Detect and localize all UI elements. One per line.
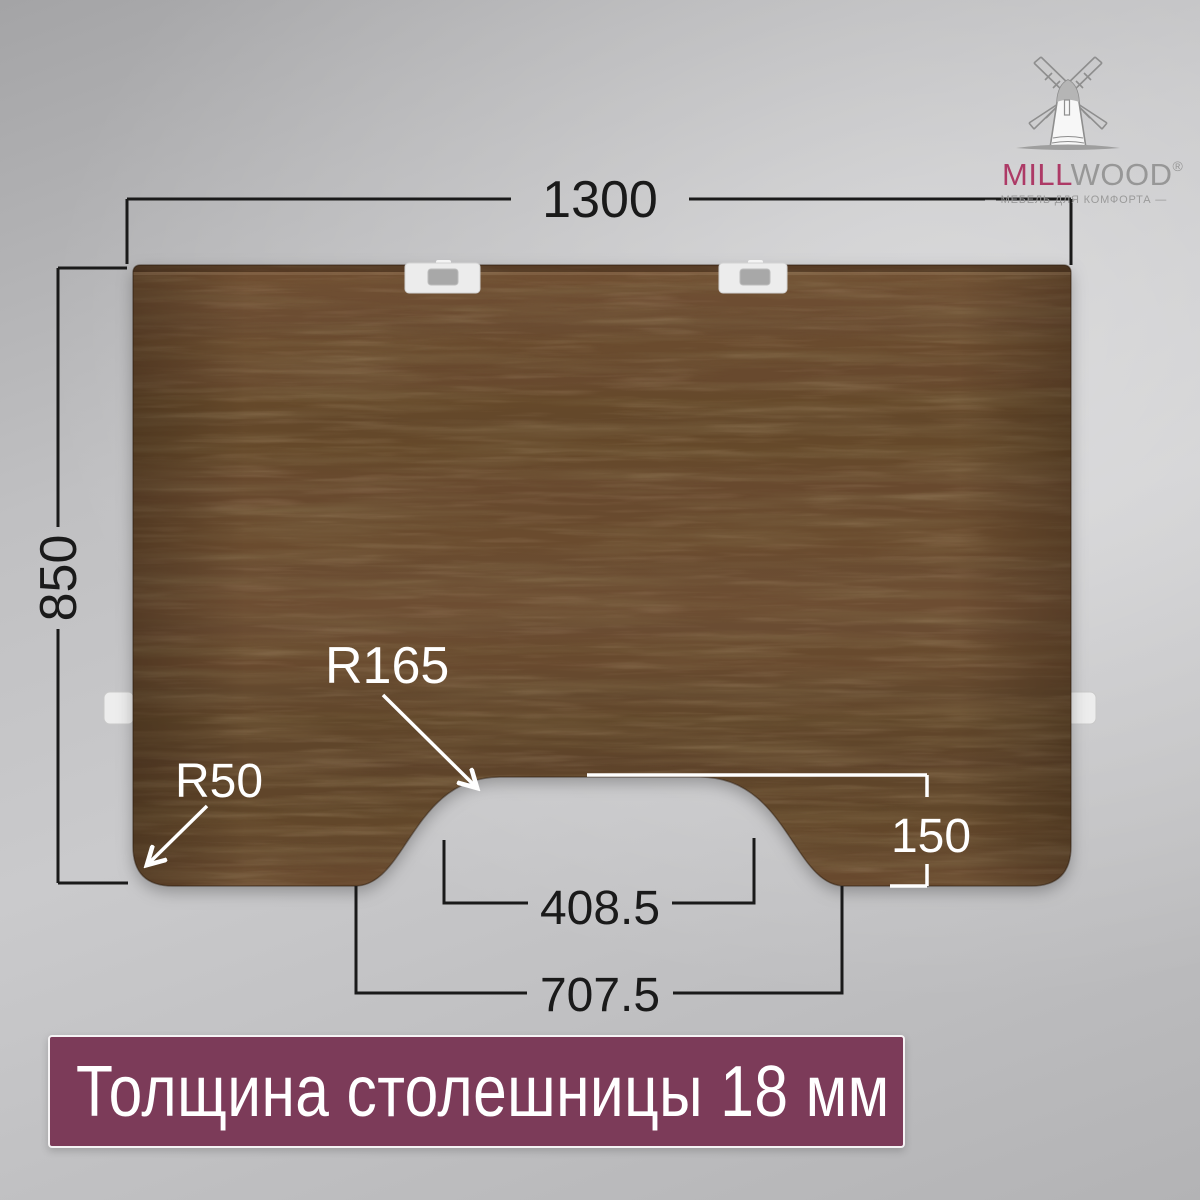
brand-tagline: — МЕБЕЛЬ ДЛЯ КОМФОРТА — [985,194,1167,206]
cutout-radius-label: R165 [325,637,449,695]
cutout-outer-width-label: 707.5 [540,969,660,1022]
brand-wordmark-secondary: WOOD [1071,157,1173,192]
windmill-icon [1016,57,1120,150]
thickness-banner: Толщина столешницы 18 мм [48,1035,905,1148]
cutout-inner-width-label: 408.5 [540,882,660,935]
tabletop-shape [133,265,1071,886]
wood-grain-texture [133,265,1071,886]
thickness-banner-text: Толщина столешницы 18 мм [76,1056,890,1128]
top-clip-left [405,260,480,293]
registered-mark: ® [1173,158,1184,174]
clip-slot [428,269,458,285]
dimension-depth-label: 850 [30,535,88,622]
scene-svg: 1300 850 R165 R50 150 408.5 [0,0,1200,1200]
corner-radius-label: R50 [175,755,263,808]
product-dimension-image: 1300 850 R165 R50 150 408.5 [0,0,1200,1200]
left-edge-clip [104,692,134,724]
brand-wordmark: MILLWOOD® [1002,157,1184,192]
cutout-depth-label: 150 [891,810,971,863]
clip-slot [740,269,770,285]
dimension-width-label: 1300 [542,171,658,229]
brand-logo: MILLWOOD® — МЕБЕЛЬ ДЛЯ КОМФОРТА — [985,57,1184,206]
top-clip-right [719,260,787,293]
brand-wordmark-primary: MILL [1002,157,1072,192]
